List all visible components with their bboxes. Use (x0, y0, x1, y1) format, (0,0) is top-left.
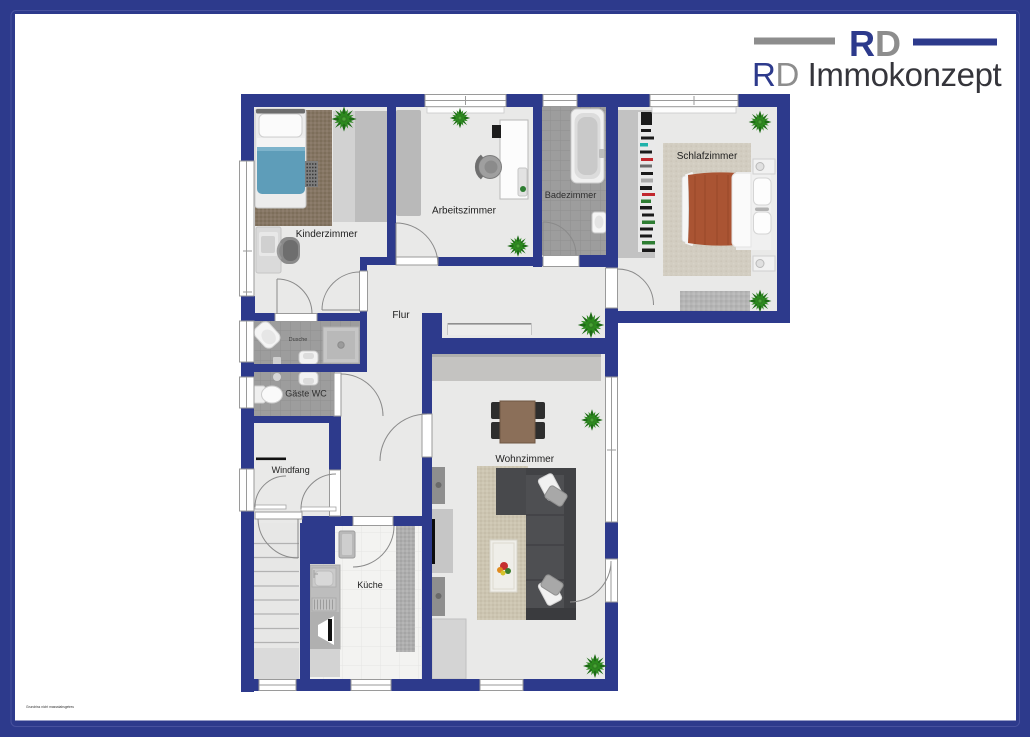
svg-text:Grundriss nicht massstabsgetre: Grundriss nicht massstabsgetreu (26, 705, 74, 709)
svg-text:Küche: Küche (357, 580, 383, 590)
svg-text:Arbeitszimmer: Arbeitszimmer (432, 206, 497, 217)
svg-text:Badezimmer: Badezimmer (545, 190, 597, 200)
svg-text:Flur: Flur (392, 310, 410, 321)
svg-text:RD Immokonzept: RD Immokonzept (752, 56, 1002, 93)
svg-text:Dusche: Dusche (289, 337, 308, 343)
svg-text:Wohnzimmer: Wohnzimmer (495, 454, 554, 465)
svg-text:Schlafzimmer: Schlafzimmer (677, 151, 738, 162)
svg-text:Windfang: Windfang (272, 465, 310, 475)
svg-text:Kinderzimmer: Kinderzimmer (296, 229, 358, 240)
svg-text:Gäste WC: Gäste WC (285, 389, 327, 399)
